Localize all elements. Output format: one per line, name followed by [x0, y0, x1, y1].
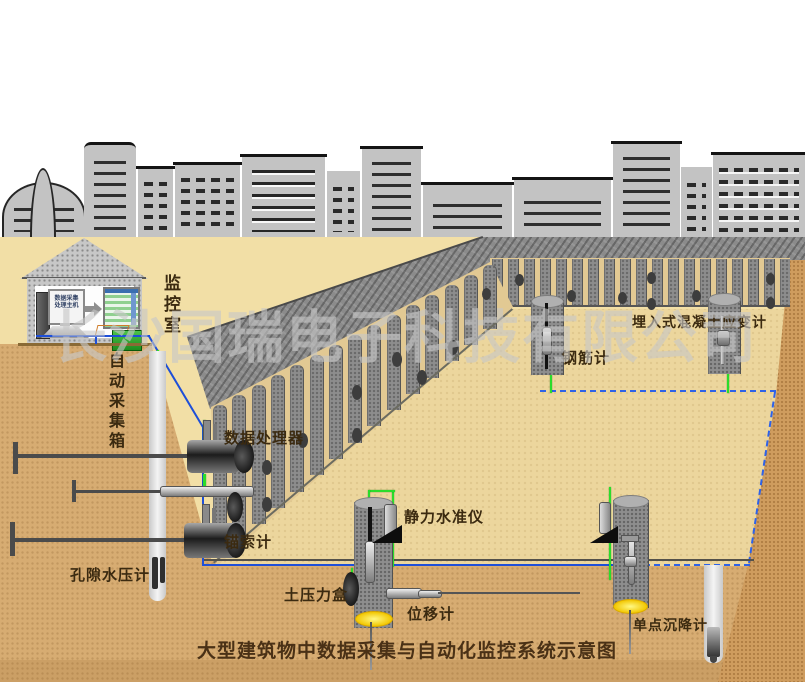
strain-sensor-collar: [717, 330, 730, 346]
label-monitor-room: 监控室: [158, 274, 183, 337]
label-displacement: 位移计: [407, 603, 455, 624]
label-data-processor: 数据处理器: [224, 427, 304, 448]
anchor-dot: [448, 340, 458, 355]
anchor-rod-3-tee: [10, 522, 15, 556]
host-monitor-text: 数据采集处理主机: [51, 295, 82, 309]
wall-column: [367, 325, 381, 426]
settlement-level-cylinder: [599, 502, 611, 534]
arrow-icon-head: [94, 302, 102, 316]
building-windows: [181, 178, 234, 232]
settlement-borehole-tip: [710, 656, 717, 663]
central-flange: [355, 611, 393, 627]
building: [514, 177, 611, 237]
label-earth-pressure: 土压力盒: [284, 584, 348, 605]
anchor-dot: [262, 497, 272, 512]
pore-pressure-sensor: [152, 557, 158, 589]
building-windows: [372, 162, 411, 232]
underground-bottom-strip: [0, 660, 805, 682]
settlement-needle: [629, 610, 631, 654]
house-ground-line: [18, 343, 152, 346]
building: [242, 154, 325, 237]
settlement-borehole-sensor: [707, 627, 720, 657]
building-cap: [136, 166, 175, 169]
building-windows: [252, 170, 315, 232]
building: [175, 162, 240, 237]
settlement-sensor-tee: [621, 535, 639, 542]
label-strain-gauge: 埋入式混凝土应变计: [632, 312, 767, 332]
building: [327, 171, 360, 237]
building-cap: [512, 177, 613, 180]
anchor-cyl-1-pin2: [213, 424, 217, 440]
label-pore-pressure: 孔隙水压计: [70, 564, 150, 585]
pore-pressure-sensor-2: [160, 557, 165, 583]
building-dome-cap: [30, 168, 56, 237]
wall-column: [780, 259, 790, 307]
label-settlement: 单点沉降计: [633, 615, 708, 635]
anchor-cyl-3-pin: [202, 504, 210, 525]
building-windows: [687, 183, 706, 232]
building: [613, 141, 680, 237]
settlement-pile-cap: [613, 495, 649, 508]
green-cable: [369, 490, 395, 492]
building: [423, 182, 512, 237]
label-rebar-gauge: 钢筋计: [562, 347, 610, 368]
anchor-rod-2-tee: [72, 480, 76, 502]
wall-column: [636, 259, 647, 307]
strain-gauge-pile-cap: [708, 293, 741, 306]
building-windows: [719, 168, 799, 232]
anchor-dot: [482, 288, 491, 300]
anchor-rod-1-tee: [13, 442, 18, 474]
anchor-rod-2: [74, 490, 166, 493]
settlement-sensor-collar: [624, 556, 637, 567]
cable-house-floor: [36, 335, 150, 337]
collection-box: [112, 330, 142, 351]
building: [681, 167, 712, 237]
building-cap: [173, 162, 242, 165]
anchor-dot: [766, 297, 775, 309]
dashed-line-lower: [644, 564, 750, 566]
anchor-dot: [618, 292, 627, 304]
central-sensor: [365, 541, 375, 583]
building-cap: [360, 146, 423, 149]
pit-floor-line: [204, 559, 754, 561]
building-windows: [333, 187, 354, 232]
anchor-dot: [647, 272, 656, 284]
city-skyline: [0, 137, 805, 240]
displacement-rod-thin: [438, 592, 580, 594]
anchor-cyl-1-pin: [203, 420, 211, 442]
label-static-level: 静力水准仪: [404, 506, 484, 527]
building-windows: [94, 161, 126, 232]
label-auto-collect-box: 自动采集箱: [103, 352, 127, 452]
anchor-rod-1: [16, 454, 192, 458]
anchor-dot: [352, 428, 362, 443]
anchor-dot: [692, 290, 701, 302]
software-screen-sidebar: [131, 293, 136, 325]
building: [713, 152, 805, 237]
wall-column: [668, 259, 679, 307]
anchor-dot: [262, 460, 272, 475]
wall-column: [464, 275, 478, 345]
anchor-cyl-3-pin2: [212, 508, 216, 523]
green-cable: [550, 372, 552, 393]
dashed-line-upper: [540, 390, 776, 392]
displacement-rod-thick: [386, 588, 422, 599]
building: [138, 166, 173, 237]
wall-column: [748, 259, 759, 307]
building-cap: [711, 152, 805, 155]
anchor-dot: [567, 290, 576, 302]
anchor-dot: [647, 298, 656, 310]
cable-monitor-stub: [95, 336, 97, 344]
arrow-icon: [85, 306, 94, 312]
anchor-dot: [766, 273, 775, 285]
anchor-dot: [352, 385, 362, 400]
building-windows: [623, 157, 670, 232]
anchor-rod-3: [13, 538, 191, 542]
wall-column: [604, 259, 615, 307]
schematic-diagram: 数据采集处理主机: [0, 0, 805, 682]
diagram-title: 大型建筑物中数据采集与自动化监控系统示意图: [197, 636, 617, 663]
wall-column: [588, 259, 599, 307]
building-windows: [144, 182, 167, 232]
building-windows: [524, 201, 601, 232]
anchor-dot: [392, 352, 402, 367]
building-cap: [240, 154, 327, 157]
wall-column: [310, 355, 324, 475]
building: [84, 142, 136, 237]
anchor-dot: [515, 274, 524, 286]
wall-column: [329, 345, 343, 459]
cable-floor-horizontal: [202, 564, 642, 566]
building: [362, 146, 421, 237]
building-windows: [433, 204, 502, 232]
anchor-dot: [417, 370, 427, 385]
rebar-sensor: [542, 327, 552, 355]
wall-disc: [227, 492, 243, 522]
building-cap: [611, 141, 682, 144]
wall-column: [425, 295, 439, 377]
building-cap: [421, 182, 514, 185]
label-anchor-gauge: 锚索计: [224, 531, 272, 552]
